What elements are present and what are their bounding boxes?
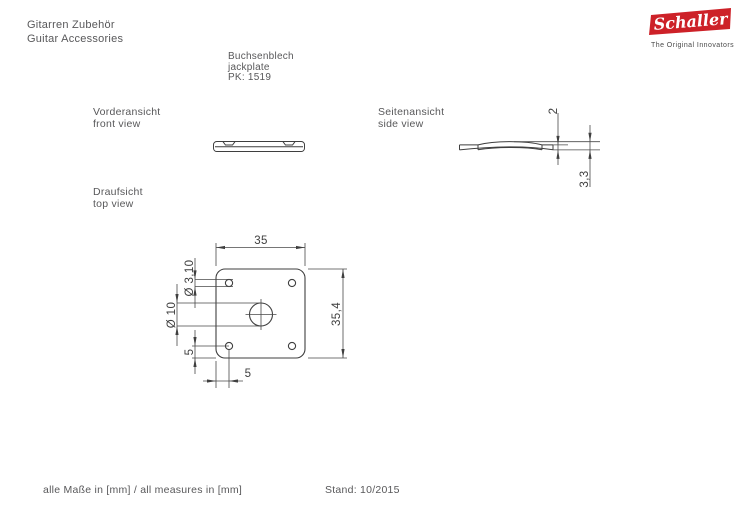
top-plate-outline — [216, 269, 305, 358]
arrowhead — [175, 294, 178, 303]
side-view-drawing: 2 3,3 — [450, 95, 608, 200]
dim-offset-vertical-lines — [192, 330, 229, 374]
part-number: PK: 1519 — [228, 73, 294, 84]
screw-hole-dia-value: Ø 3,10 — [184, 260, 196, 297]
side-total-height-value: 3,3 — [579, 170, 591, 187]
side-extension-lines — [514, 142, 600, 150]
arrowhead — [556, 136, 559, 145]
offset-vertical-value: 5 — [184, 349, 196, 356]
header-title-en: Guitar Accessories — [27, 33, 123, 47]
part-info: Buchsenblech jackplate PK: 1519 — [228, 52, 294, 84]
side-view-label-en: side view — [378, 118, 444, 130]
datasheet-page: Gitarren Zubehör Guitar Accessories Buch… — [0, 0, 742, 524]
screw-hole-top-right — [288, 279, 295, 286]
units-note: alle Maße in [mm] / all measures in [mm] — [43, 484, 242, 496]
dim-screw-hole-lines — [195, 258, 233, 308]
top-view-label-de: Draufsicht — [93, 186, 143, 198]
front-countersink-right — [283, 142, 295, 145]
arrowhead — [588, 133, 591, 142]
top-width-value: 35 — [254, 235, 268, 247]
arrowhead — [341, 349, 344, 358]
logo-brand-text: Schaller — [653, 9, 730, 34]
arrowhead — [207, 379, 216, 382]
arrowhead — [216, 246, 225, 249]
logo-tagline: The Original Innovators — [651, 42, 734, 49]
offset-horizontal-value: 5 — [245, 368, 252, 380]
front-view-drawing — [205, 133, 317, 159]
top-height-value: 35,4 — [331, 302, 343, 326]
revision-date: Stand: 10/2015 — [325, 484, 400, 496]
top-view-label: Draufsicht top view — [93, 186, 143, 210]
front-countersink-left — [223, 142, 235, 145]
center-hole-crosshair — [246, 299, 277, 330]
front-view-label: Vorderansicht front view — [93, 106, 160, 130]
side-view-label-de: Seitenansicht — [378, 106, 444, 118]
arrowhead — [193, 337, 196, 346]
top-view-drawing: 35 35,4 Ø 3,10 Ø 10 5 5 — [155, 230, 360, 395]
front-view-label-de: Vorderansicht — [93, 106, 160, 118]
header-title-de: Gitarren Zubehör — [27, 19, 123, 33]
arrowhead — [556, 150, 559, 159]
side-view-label: Seitenansicht side view — [378, 106, 444, 130]
arrowhead — [193, 358, 196, 367]
page-header: Gitarren Zubehör Guitar Accessories — [27, 19, 123, 46]
brand-logo: Schaller — [645, 6, 742, 46]
arrowhead — [341, 269, 344, 278]
arrowhead — [229, 379, 238, 382]
side-thickness-value: 2 — [548, 108, 560, 115]
arrowhead — [296, 246, 305, 249]
screw-hole-top-left — [225, 279, 232, 286]
top-view-label-en: top view — [93, 198, 143, 210]
side-plate-top-edge — [460, 142, 554, 145]
center-hole-dia-value: Ø 10 — [166, 302, 178, 329]
screw-hole-bottom-right — [288, 342, 295, 349]
arrowhead — [588, 150, 591, 159]
part-name-de: Buchsenblech — [228, 52, 294, 63]
front-view-label-en: front view — [93, 118, 160, 130]
